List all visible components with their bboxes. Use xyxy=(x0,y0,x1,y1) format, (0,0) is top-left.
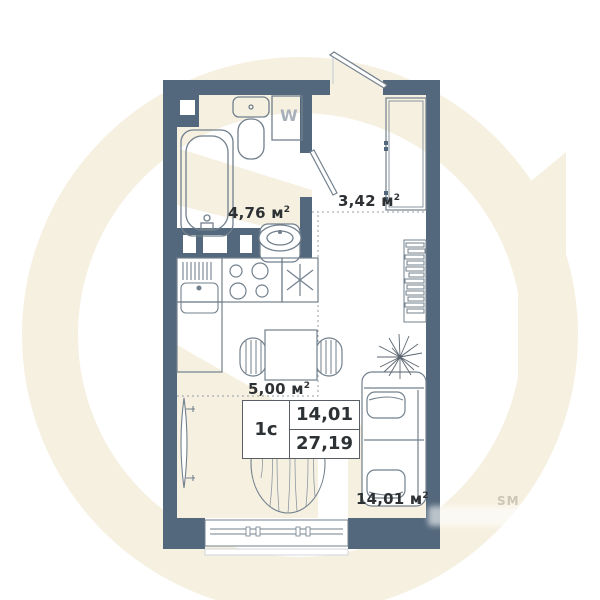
chair-icon xyxy=(240,338,266,376)
dining-table-icon xyxy=(240,330,342,380)
wash-basin-icon xyxy=(259,224,301,262)
watermark-blur xyxy=(428,506,554,526)
watermark-sm-label: SM xyxy=(497,494,520,508)
window-icon xyxy=(205,520,348,555)
bookshelf-icon xyxy=(404,240,426,322)
chair-icon xyxy=(316,338,342,376)
floorplan-image: 4,76 м2 3,42 м2 5,00 м2 14,01 м2 W 1с 14… xyxy=(0,0,600,600)
sofa-bed-icon xyxy=(362,372,426,506)
washing-machine-label: W xyxy=(280,106,298,125)
unit-info-card: 1с 14,01 27,19 xyxy=(242,400,360,459)
area-label-kitchen: 5,00 м2 xyxy=(248,380,310,398)
area-label-hall: 3,42 м2 xyxy=(338,192,400,210)
area-label-living: 14,01 м2 xyxy=(356,490,429,508)
area-label-bathroom: 4,76 м2 xyxy=(228,204,290,222)
kitchen-sink-icon xyxy=(181,262,218,313)
unit-type-label: 1с xyxy=(243,401,290,458)
bathroom-door-icon xyxy=(310,150,337,195)
unit-living-area: 14,01 xyxy=(290,401,359,430)
unit-total-area: 27,19 xyxy=(290,430,359,459)
fridge-icon xyxy=(282,258,318,302)
stove-icon xyxy=(230,263,268,299)
